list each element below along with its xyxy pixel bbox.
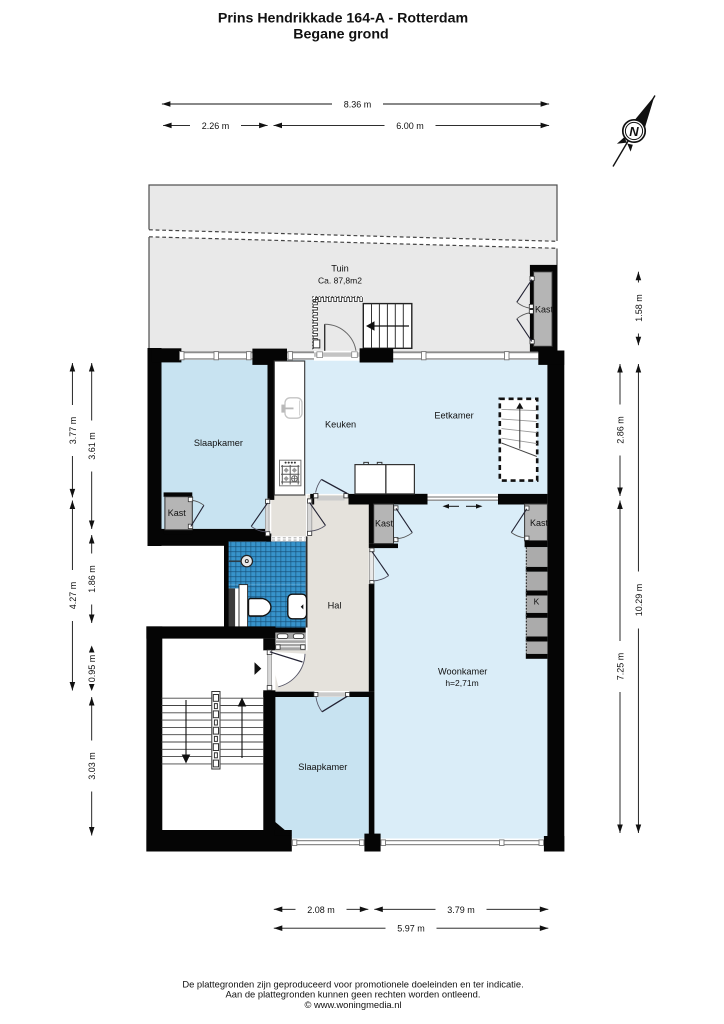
svg-text:© www.woningmedia.nl: © www.woningmedia.nl — [304, 999, 401, 1010]
svg-text:1.86 m: 1.86 m — [87, 565, 97, 593]
svg-text:Kast: Kast — [535, 305, 554, 315]
svg-text:3.79 m: 3.79 m — [447, 905, 475, 915]
svg-text:Hal: Hal — [328, 601, 342, 611]
svg-text:3.61 m: 3.61 m — [87, 432, 97, 460]
svg-text:Eetkamer: Eetkamer — [434, 411, 473, 421]
svg-text:N: N — [629, 124, 639, 139]
svg-text:8.36 m: 8.36 m — [344, 100, 372, 110]
svg-text:0.95 m: 0.95 m — [87, 655, 97, 683]
svg-text:Slaapkamer: Slaapkamer — [298, 762, 347, 772]
svg-text:5.97 m: 5.97 m — [397, 924, 425, 934]
svg-text:Keuken: Keuken — [325, 420, 356, 430]
svg-text:h=2,71m: h=2,71m — [445, 678, 478, 688]
svg-text:Tuin: Tuin — [331, 264, 349, 274]
svg-text:4.27 m: 4.27 m — [68, 582, 78, 610]
svg-text:Slaapkamer: Slaapkamer — [194, 438, 243, 448]
svg-text:10.29 m: 10.29 m — [634, 584, 644, 617]
svg-text:1.58 m: 1.58 m — [634, 294, 644, 322]
svg-text:Begane grond: Begane grond — [293, 27, 388, 43]
svg-text:Ca. 87,8m2: Ca. 87,8m2 — [318, 276, 362, 286]
svg-text:Woonkamer: Woonkamer — [438, 667, 487, 677]
svg-text:Kast: Kast — [375, 519, 394, 529]
svg-text:Prins Hendrikkade 164-A - Rott: Prins Hendrikkade 164-A - Rotterdam — [218, 11, 468, 27]
svg-text:6.00 m: 6.00 m — [396, 121, 424, 131]
svg-text:De plattegronden zijn geproduc: De plattegronden zijn geproduceerd voor … — [182, 978, 523, 989]
svg-text:7.25 m: 7.25 m — [616, 653, 626, 681]
svg-text:2.08 m: 2.08 m — [307, 905, 335, 915]
svg-text:3.03 m: 3.03 m — [87, 752, 97, 780]
svg-text:K: K — [534, 597, 540, 607]
svg-text:Aan de plattegronden kunnen ge: Aan de plattegronden kunnen geen rechten… — [226, 989, 481, 1000]
svg-text:2.26 m: 2.26 m — [202, 121, 230, 131]
svg-text:3.77 m: 3.77 m — [68, 417, 78, 445]
svg-text:2.86 m: 2.86 m — [616, 416, 626, 444]
svg-text:Kast: Kast — [530, 518, 549, 528]
svg-text:Kast: Kast — [168, 508, 187, 518]
